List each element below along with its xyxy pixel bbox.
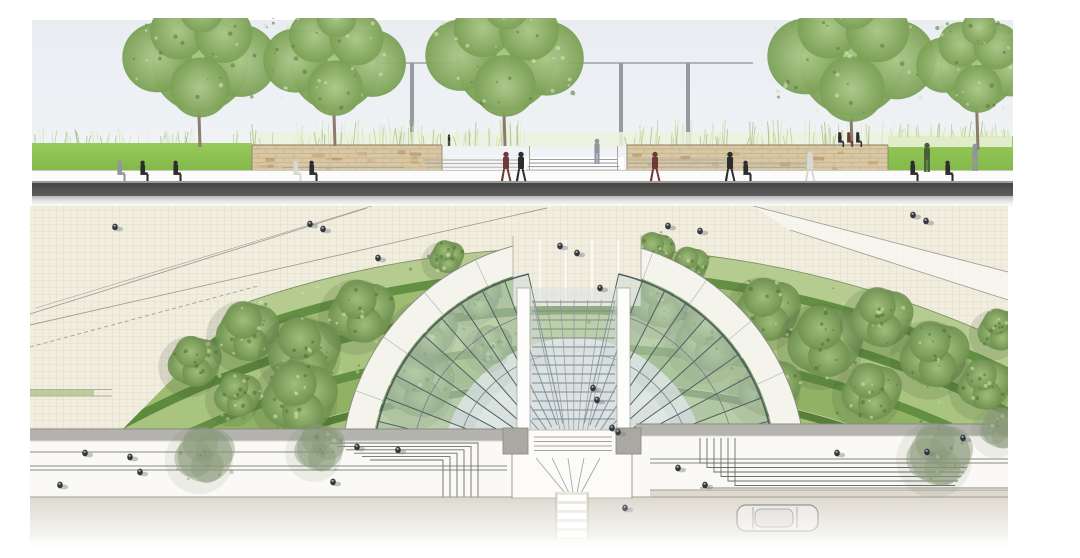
stair-entrance	[503, 428, 641, 498]
section-elevation	[32, 0, 1039, 209]
ground-line	[32, 183, 1013, 196]
drawing-svg	[0, 0, 1080, 558]
architectural-drawing-page	[0, 0, 1080, 558]
site-plan	[0, 206, 1080, 558]
